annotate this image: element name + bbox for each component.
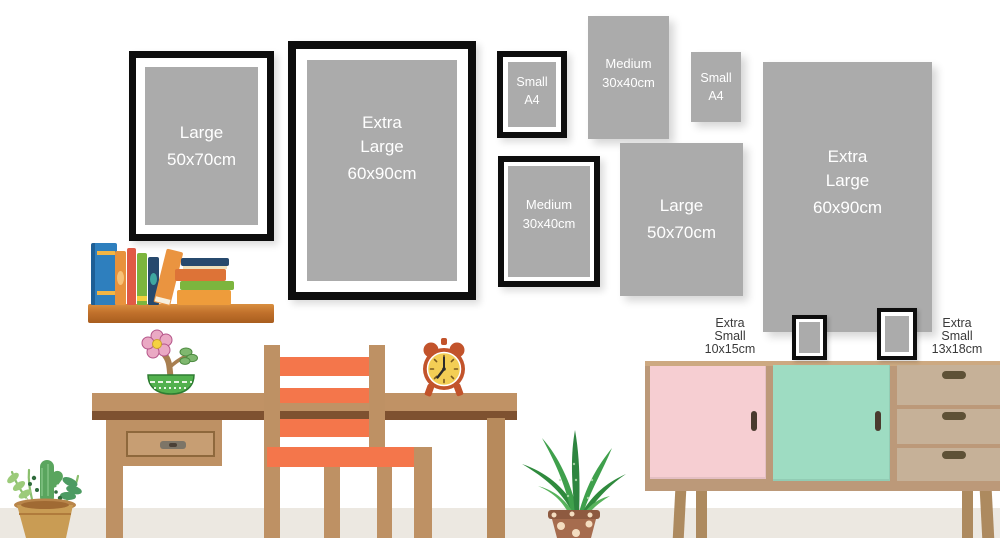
frame-extra-small-10x15 — [792, 315, 827, 360]
print-size-label: Large — [826, 169, 869, 193]
print-size-label: Medium — [605, 54, 651, 73]
door-handle — [875, 411, 881, 431]
stacked-book — [177, 290, 231, 305]
frame-dimension-label: 60x90cm — [348, 162, 417, 186]
print-medium-30x40: Medium 30x40cm — [588, 16, 669, 139]
bonsai-plant-illustration — [140, 328, 200, 396]
stacked-book — [175, 269, 226, 281]
print-size-label: Small — [700, 69, 731, 87]
aloe-plant-illustration — [512, 424, 637, 538]
frame-extra-small-13x18 — [877, 308, 917, 360]
frame-size-label: Large — [180, 121, 223, 145]
sideboard-leg — [962, 491, 973, 538]
print-size-label: Extra — [828, 145, 868, 169]
chair-leg — [377, 467, 392, 538]
frame-size-label: Extra — [362, 111, 402, 135]
stacked-book — [181, 258, 229, 266]
chair-back-post — [369, 345, 385, 448]
frame-dimension-label: 30x40cm — [523, 214, 576, 233]
chair-back-post — [264, 345, 280, 538]
caption-line: 10x15cm — [695, 343, 765, 356]
chair-slat — [280, 388, 369, 403]
frame-extra-small-art — [799, 322, 820, 353]
drawer-handle — [942, 451, 966, 459]
print-dimension-label: 30x40cm — [602, 73, 655, 92]
door-handle — [751, 411, 757, 431]
caption-line: 13x18cm — [922, 343, 992, 356]
frame-extra-small-art — [885, 316, 909, 352]
caption-extra-small-13x18: Extra Small 13x18cm — [922, 317, 992, 356]
book — [127, 248, 136, 305]
print-dimension-label: 50x70cm — [647, 221, 716, 245]
print-dimension-label: A4 — [708, 87, 723, 105]
frame-size-guide-scene: Large 50x70cm Extra Large 60x90cm Small … — [0, 0, 1000, 538]
frame-large-art: Large 50x70cm — [145, 67, 258, 225]
print-extra-large-60x90: Extra Large 60x90cm — [763, 62, 932, 332]
caption-extra-small-10x15: Extra Small 10x15cm — [695, 317, 765, 356]
wall-shelf — [88, 304, 274, 323]
chair-leg — [414, 447, 432, 538]
desk-leg — [106, 420, 123, 538]
frame-medium-30x40: Medium 30x40cm — [498, 156, 600, 287]
frame-small-a4: Small A4 — [497, 51, 567, 138]
drawer-handle — [942, 371, 966, 379]
book — [91, 243, 117, 305]
frame-size-label: Medium — [526, 195, 572, 214]
frame-dimension-label: 50x70cm — [167, 148, 236, 172]
frame-extra-large-art: Extra Large 60x90cm — [307, 60, 457, 281]
desk-leg — [487, 418, 505, 538]
stacked-book — [180, 281, 234, 290]
frame-medium-art: Medium 30x40cm — [508, 166, 590, 277]
print-large-50x70: Large 50x70cm — [620, 143, 743, 296]
drawer-handle — [160, 441, 186, 449]
print-size-label: Large — [660, 194, 703, 218]
frame-small-a4-art: Small A4 — [508, 62, 556, 127]
book — [137, 253, 147, 305]
frame-dimension-label: A4 — [524, 91, 539, 109]
alarm-clock-illustration — [418, 336, 470, 396]
frame-extra-large-60x90: Extra Large 60x90cm — [288, 41, 476, 300]
succulent-pot-illustration — [0, 438, 100, 538]
frame-large-50x70: Large 50x70cm — [129, 51, 274, 241]
sideboard-leg — [696, 491, 707, 538]
chair-slat — [280, 419, 369, 437]
print-dimension-label: 60x90cm — [813, 196, 882, 220]
print-small-a4: Small A4 — [691, 52, 741, 122]
frame-size-label: Large — [360, 135, 403, 159]
drawer-handle — [942, 412, 966, 420]
chair-slat — [280, 357, 369, 376]
frame-size-label: Small — [516, 73, 547, 91]
book — [115, 251, 126, 305]
sideboard-door-mint — [773, 365, 890, 481]
chair-seat — [267, 447, 415, 467]
chair-leg — [324, 467, 340, 538]
sideboard-leg — [980, 491, 994, 538]
sideboard-door-pink — [650, 366, 766, 479]
